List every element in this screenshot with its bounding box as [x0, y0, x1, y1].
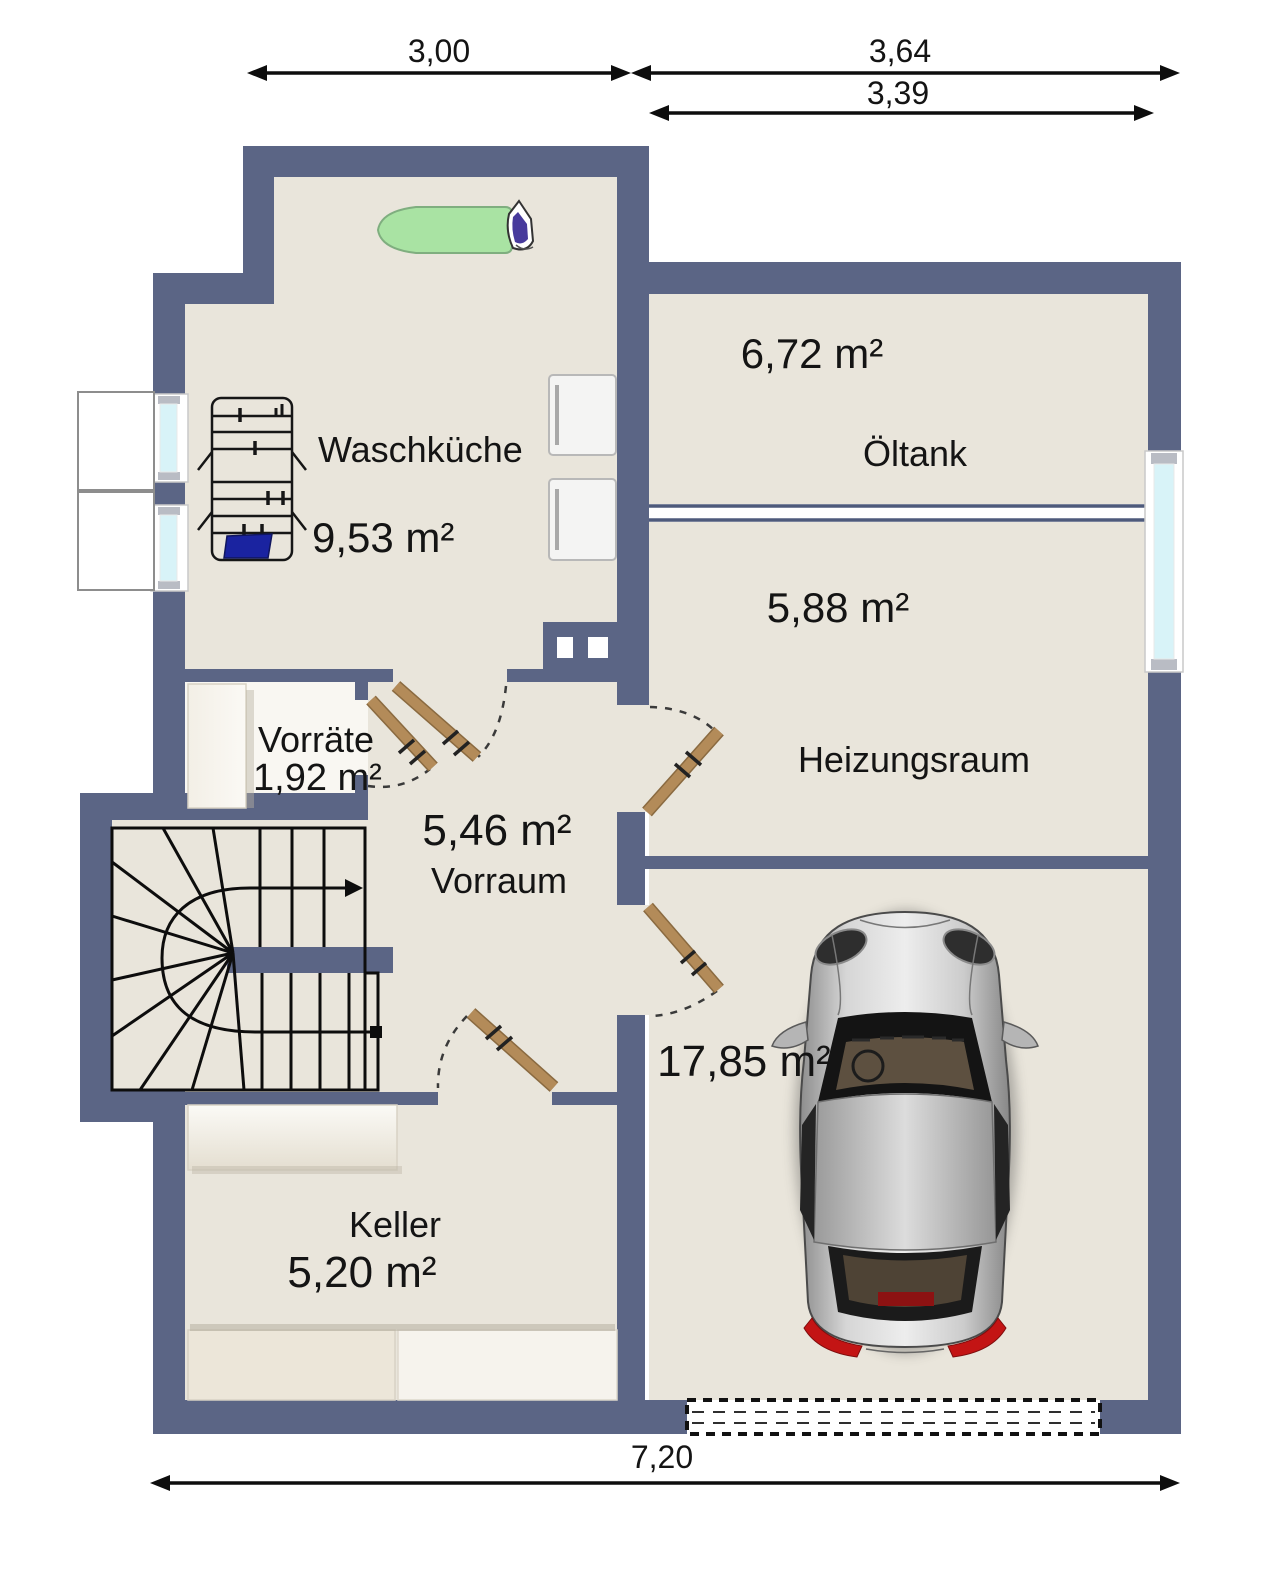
vorraete-shelf-icon [188, 684, 254, 808]
towel-icon [224, 534, 272, 558]
partition-oeltank-heizung [649, 504, 1148, 522]
washing-machine-icon [549, 375, 616, 455]
window-right [1145, 451, 1183, 672]
keller-shelf-top-icon [188, 1105, 402, 1174]
car-icon [772, 910, 1038, 1357]
dryer-icon [549, 479, 616, 560]
window-left-1 [151, 394, 188, 482]
dimension-top-right: 3,64 [869, 33, 931, 69]
room-area-waschkueche: 9,53 m² [312, 514, 454, 561]
room-area-garage: 17,85 m² [657, 1037, 831, 1086]
floor-plan: Waschküche 9,53 m² 6,72 m² Öltank 5,88 m… [0, 0, 1275, 1587]
room-area-vorraete: 1,92 m² [253, 757, 382, 799]
room-label-keller: Keller [349, 1204, 441, 1245]
room-area-vorraum: 5,46 m² [422, 806, 571, 855]
room-area-heizungsraum: 5,88 m² [767, 584, 909, 631]
room-label-heizungsraum: Heizungsraum [798, 739, 1030, 780]
window-left-2 [151, 505, 188, 591]
room-area-keller: 5,20 m² [287, 1248, 436, 1297]
floor-plan-page: Waschküche 9,53 m² 6,72 m² Öltank 5,88 m… [0, 0, 1275, 1587]
dimension-bottom: 7,20 [631, 1439, 693, 1475]
keller-shelf-bottom-icon [188, 1324, 617, 1400]
garage-door-icon [687, 1400, 1100, 1434]
room-label-vorraete: Vorräte [258, 719, 374, 760]
room-label-waschkueche: Waschküche [318, 429, 523, 470]
room-label-oeltank: Öltank [863, 433, 968, 474]
room-label-vorraum: Vorraum [431, 860, 567, 901]
dimension-top-left: 3,00 [408, 33, 470, 69]
light-well-icon [78, 392, 154, 590]
chimney-icon [543, 622, 617, 682]
dimension-top-right-inner: 3,39 [867, 75, 929, 111]
room-area-oeltank: 6,72 m² [741, 330, 883, 377]
ironing-board-icon [378, 207, 512, 253]
